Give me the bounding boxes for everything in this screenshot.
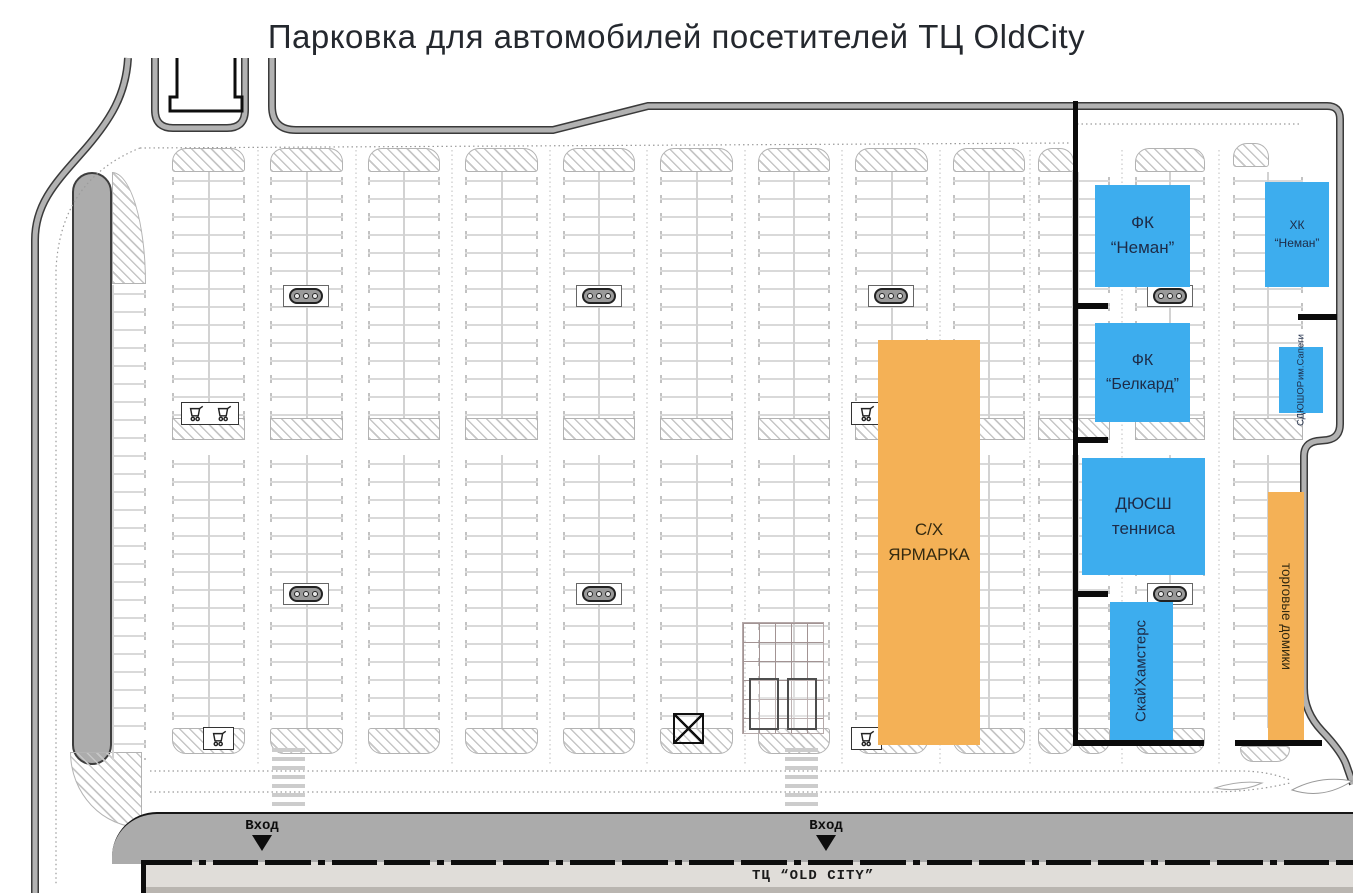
boundary-stub [1076, 591, 1108, 597]
venue-sdushor-sapegi: СДЮШОР им.Сапеги [1279, 347, 1323, 413]
street-lamp-icon [1147, 285, 1193, 307]
road-band [112, 812, 1353, 864]
mall-building-inner [141, 887, 1353, 893]
venue-fk-belkard: ФК “Белкард” [1095, 323, 1190, 422]
parking-map: Парковка для автомобилей посетителей ТЦ … [0, 0, 1353, 893]
street-lamp-icon [576, 285, 622, 307]
mall-wall-dashed [146, 860, 1353, 865]
entrance-arrow-icon [816, 835, 836, 851]
venue-hk-neman: ХК “Неман” [1265, 182, 1329, 287]
pergola-grid-structure [742, 622, 824, 734]
boundary-stub [1298, 314, 1337, 320]
crossed-box-structure [673, 713, 704, 744]
boundary-stub [1076, 437, 1108, 443]
boundary-stub [1076, 303, 1108, 309]
mall-name-label: ТЦ “OLD CITY” [752, 868, 874, 884]
stage-structure-outline [170, 58, 242, 111]
landscape-leaf [1215, 782, 1262, 789]
landscape-leaf [1292, 779, 1352, 793]
street-lamp-icon [868, 285, 914, 307]
entrance-marker-2: Вход [796, 818, 856, 851]
entrance-label: Вход [796, 818, 856, 834]
venue-dussh-tennis: ДЮСШ тенниса [1082, 458, 1205, 575]
page-title: Парковка для автомобилей посетителей ТЦ … [0, 18, 1353, 56]
boundary-line-bottom [1073, 740, 1204, 746]
cart-station-icon [203, 727, 234, 750]
venue-sky-hamsters: Скай Хамстерс [1110, 602, 1173, 740]
venue-agri-fair: С/Х ЯРМАРКА [878, 340, 980, 745]
entrance-marker-1: Вход [232, 818, 292, 851]
venue-trade-houses: торговые домики [1268, 492, 1304, 740]
boundary-line-vertical [1073, 101, 1078, 746]
entrance-label: Вход [232, 818, 292, 834]
boundary-line-bottom [1235, 740, 1322, 746]
street-lamp-icon [283, 583, 329, 605]
street-lamp-icon [283, 285, 329, 307]
cart-station-icon [181, 402, 239, 425]
crosswalk [272, 748, 305, 810]
street-lamp-icon [576, 583, 622, 605]
mall-building [141, 862, 1353, 887]
venue-fk-neman: ФК “Неман” [1095, 185, 1190, 287]
mall-wall-left [141, 860, 146, 893]
road-curb-lines [0, 0, 1353, 893]
entrance-arrow-icon [252, 835, 272, 851]
crosswalk [785, 748, 818, 810]
